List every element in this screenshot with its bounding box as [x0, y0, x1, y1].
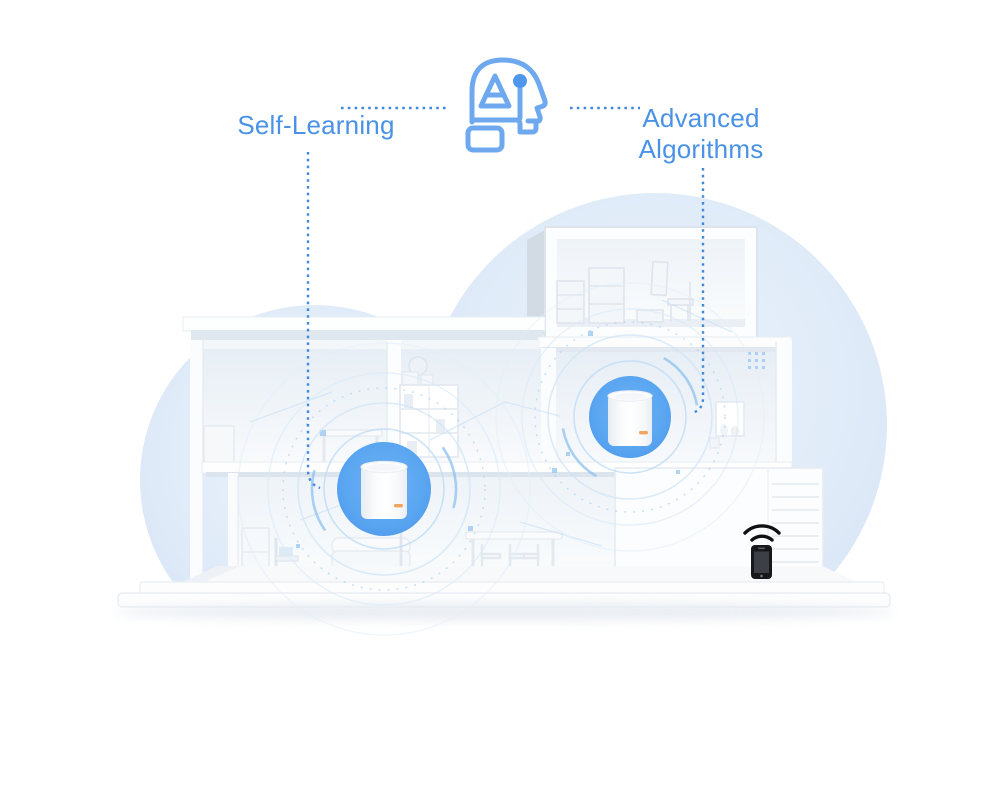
marketing-illustration: Self-Learning Advanced Algorithms [0, 0, 1000, 800]
router-node-left [337, 442, 431, 536]
ai-head-outline [472, 60, 545, 122]
tplink-logo [394, 504, 403, 507]
ai-dot [513, 74, 527, 88]
ai-head-icon [450, 48, 560, 158]
base-platform [115, 566, 895, 621]
tplink-logo [639, 431, 648, 434]
mesh-router-left [361, 462, 407, 520]
roof-plank [183, 317, 545, 340]
self-learning-label: Self-Learning [226, 110, 406, 141]
advanced-algorithms-label: Advanced Algorithms [616, 103, 786, 165]
dot-grid [748, 352, 765, 369]
ai-neck-block [468, 128, 502, 150]
router-node-right [589, 376, 671, 458]
ai-letter-a [481, 76, 509, 106]
mid-roof-plank [538, 337, 792, 352]
smartphone-icon [751, 545, 772, 579]
mesh-router-right [608, 391, 652, 446]
base-shadow [115, 603, 895, 621]
garage-box [615, 468, 823, 576]
